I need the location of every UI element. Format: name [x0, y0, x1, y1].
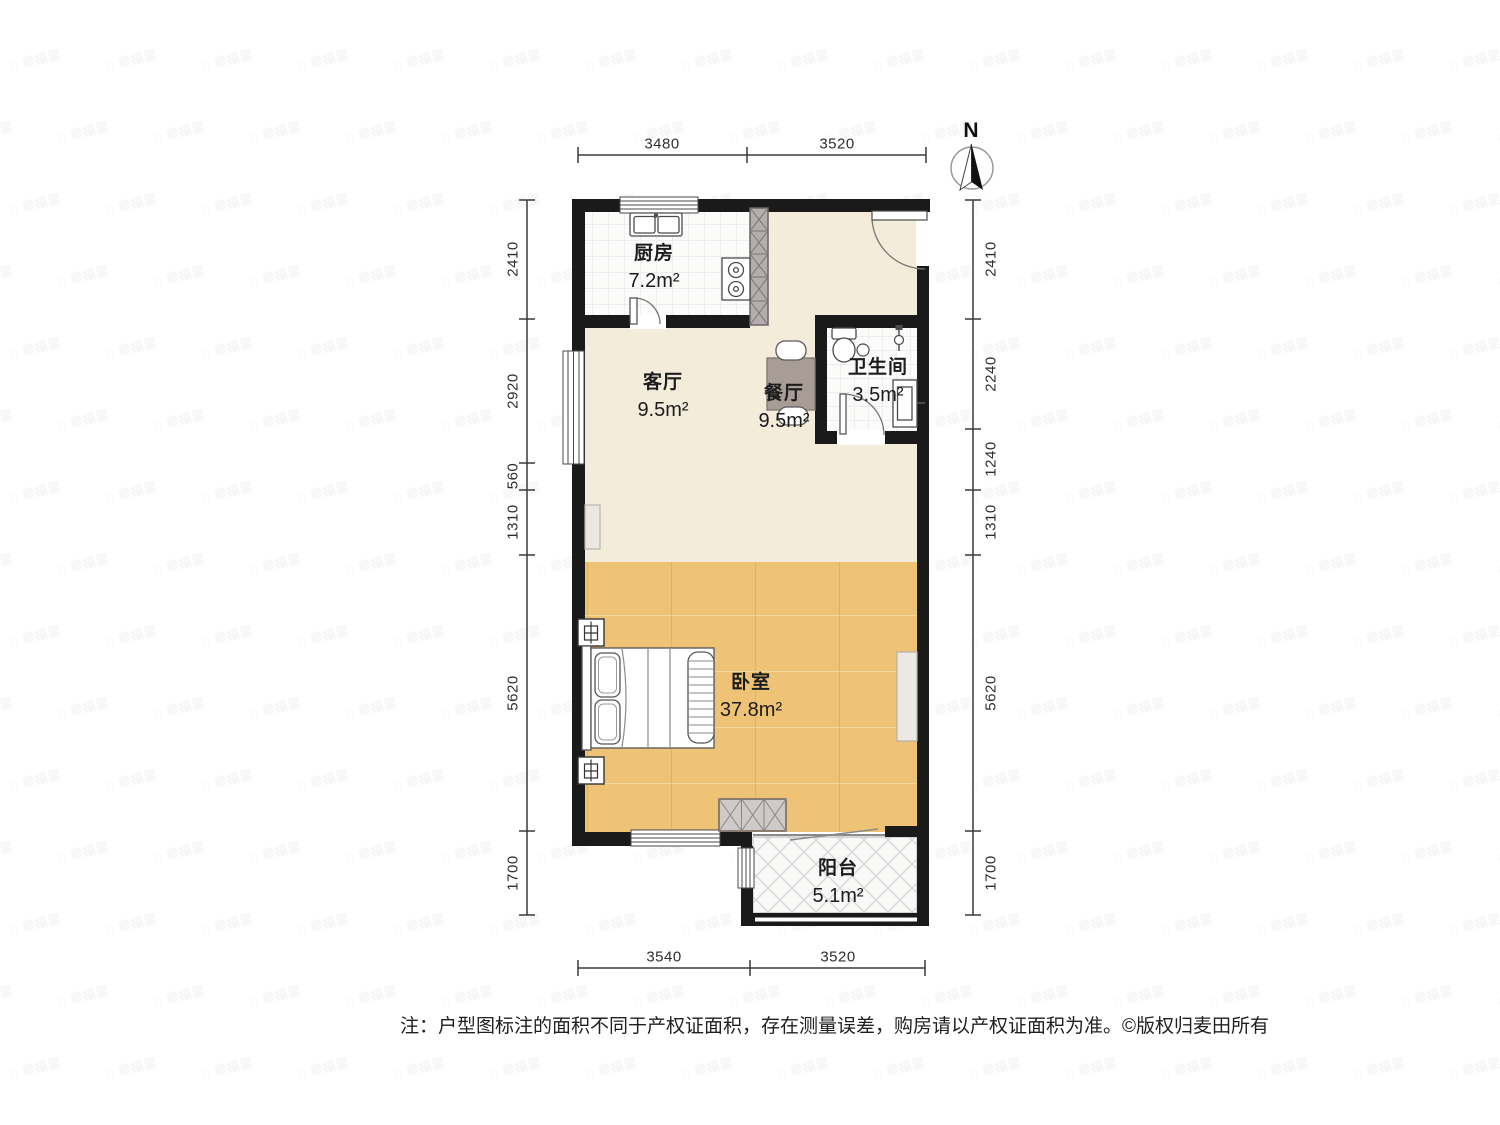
dim-line-right [965, 200, 981, 915]
flue-shaft [750, 208, 768, 325]
bed-icon [582, 646, 714, 750]
floorplan-page: ⌂幸福里⌂幸福里⌂幸福里⌂幸福里⌂幸福里⌂幸福里⌂幸福里⌂幸福里⌂幸福里⌂幸福里… [0, 0, 1500, 1125]
dim-right-5: 5620 [983, 675, 1000, 710]
meter-box-icon [578, 619, 604, 646]
compass-north-label: N [963, 119, 978, 143]
wall-kitchen-bottom [585, 315, 750, 328]
room-label-dining: 餐厅 9.5m² [758, 383, 809, 433]
bedroom-window [631, 830, 720, 846]
room-label-living: 客厅 9.5m² [637, 372, 688, 422]
balcony-window [738, 848, 754, 888]
dim-left-3: 560 [505, 463, 522, 490]
kitchen-sink-icon [630, 213, 682, 236]
room-label-balcony: 阳台 5.1m² [812, 858, 863, 908]
dim-left-2: 2920 [505, 373, 522, 408]
dim-top-2: 3520 [819, 136, 854, 153]
room-area: 7.2m² [628, 269, 679, 293]
room-label-bedroom: 卧室 37.8m² [720, 672, 782, 722]
compass-icon [951, 144, 993, 190]
room-label-kitchen: 厨房 7.2m² [628, 243, 679, 293]
dim-left-6: 1700 [505, 855, 522, 890]
hall-cabinet [585, 505, 600, 549]
dim-line-left [519, 200, 535, 915]
room-name: 卧室 [720, 672, 782, 695]
dining-chair-top [776, 341, 806, 360]
footer-note: 注：户型图标注的面积不同于产权证面积，存在测量误差，购房请以产权证面积为准。 ©… [400, 1011, 1100, 1038]
wall-balcony-top-right [885, 826, 917, 837]
dim-bottom-2: 3520 [820, 949, 855, 966]
wardrobe-hatched [719, 799, 786, 831]
dim-left-4: 1310 [505, 504, 522, 539]
dim-left-1: 2410 [505, 241, 522, 276]
dim-right-1: 2410 [983, 241, 1000, 276]
floorplan-drawing [0, 0, 1500, 1125]
disclaimer-text: 注：户型图标注的面积不同于产权证面积，存在测量误差，购房请以产权证面积为准。 [400, 1011, 1122, 1038]
bedroom-cabinet [897, 652, 917, 741]
copyright-text: ©版权归麦田所有 [1122, 1011, 1269, 1038]
floor-drain-icon [857, 344, 869, 356]
dim-right-3: 1240 [983, 441, 1000, 476]
stove-icon [722, 258, 750, 300]
dim-top-1: 3480 [644, 136, 679, 153]
dim-right-2: 2240 [983, 356, 1000, 391]
room-name: 阳台 [812, 858, 863, 881]
kitchen-window [620, 197, 698, 213]
dim-line-bottom [578, 960, 925, 976]
dim-bottom-1: 3540 [646, 949, 681, 966]
living-window [563, 351, 584, 464]
room-name: 厨房 [628, 243, 679, 266]
wall-bath-left [815, 328, 827, 444]
room-name: 客厅 [637, 372, 688, 395]
room-area: 9.5m² [758, 409, 809, 433]
meter-box-icon [578, 757, 604, 784]
room-area: 5.1m² [812, 884, 863, 908]
dim-right-6: 1700 [983, 855, 1000, 890]
room-area: 3.5m² [848, 383, 908, 407]
wall-right [917, 212, 929, 926]
room-area: 37.8m² [720, 698, 782, 722]
dim-right-4: 1310 [983, 504, 1000, 539]
room-area: 9.5m² [637, 398, 688, 422]
room-name: 餐厅 [758, 383, 809, 406]
balcony-railing-line [755, 918, 917, 922]
room-name: 卫生间 [848, 357, 908, 380]
dim-line-top [578, 147, 926, 163]
room-label-bathroom: 卫生间 3.5m² [848, 357, 908, 407]
dim-left-5: 5620 [505, 675, 522, 710]
